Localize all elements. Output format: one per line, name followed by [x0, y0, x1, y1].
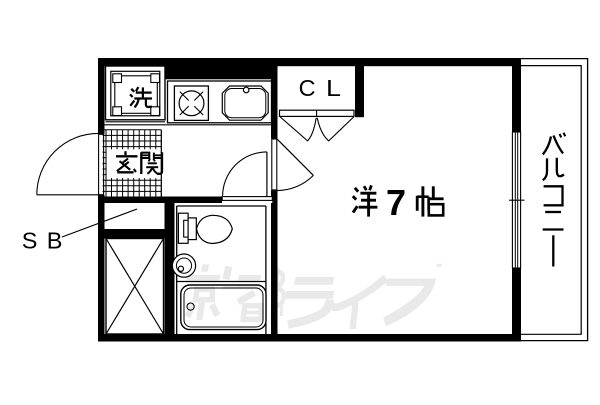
svg-text:C: C [299, 75, 316, 101]
svg-text:L: L [326, 75, 341, 101]
svg-text:S: S [22, 228, 38, 254]
svg-text:B: B [47, 228, 63, 254]
svg-text:7: 7 [386, 182, 406, 223]
